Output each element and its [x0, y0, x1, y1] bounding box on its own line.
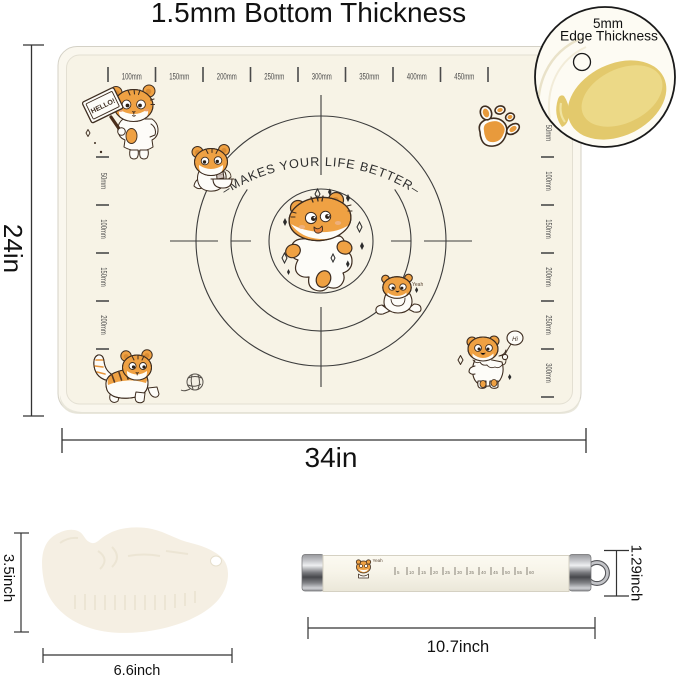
svg-text:10: 10	[409, 570, 415, 575]
svg-text:200mm: 200mm	[544, 267, 553, 287]
svg-text:Yeah: Yeah	[373, 558, 384, 563]
svg-text:40: 40	[481, 570, 487, 575]
svg-text:150mm: 150mm	[169, 72, 189, 82]
svg-text:6.6inch: 6.6inch	[114, 663, 161, 679]
svg-text:300mm: 300mm	[544, 363, 553, 383]
svg-text:100mm: 100mm	[122, 72, 142, 82]
svg-text:Edge Thickness: Edge Thickness	[560, 29, 658, 44]
svg-text:250mm: 250mm	[544, 315, 553, 335]
svg-text:250mm: 250mm	[264, 72, 284, 82]
svg-text:60: 60	[529, 570, 535, 575]
svg-text:100mm: 100mm	[99, 219, 108, 239]
svg-text:150mm: 150mm	[544, 219, 553, 239]
svg-text:Hi: Hi	[512, 337, 518, 343]
svg-text:Yeah: Yeah	[412, 282, 423, 288]
svg-text:30: 30	[457, 570, 463, 575]
svg-text:100mm: 100mm	[544, 171, 553, 191]
svg-text:15: 15	[421, 570, 427, 575]
svg-text:50: 50	[505, 570, 511, 575]
svg-text:450mm: 450mm	[454, 72, 474, 82]
svg-text:50mm: 50mm	[544, 125, 553, 142]
svg-text:24in: 24in	[0, 224, 28, 273]
svg-text:350mm: 350mm	[359, 72, 379, 82]
svg-text:25: 25	[445, 570, 451, 575]
svg-text:150mm: 150mm	[99, 267, 108, 287]
svg-text:1.29inch: 1.29inch	[628, 545, 645, 602]
svg-text:50mm: 50mm	[99, 173, 108, 190]
svg-text:35: 35	[469, 570, 475, 575]
svg-text:45: 45	[493, 570, 499, 575]
svg-text:55: 55	[517, 570, 523, 575]
svg-text:200mm: 200mm	[99, 315, 108, 335]
svg-text:300mm: 300mm	[312, 72, 332, 82]
svg-text:3.5inch: 3.5inch	[0, 554, 17, 602]
svg-text:1.5mm Bottom Thickness: 1.5mm Bottom Thickness	[151, 0, 466, 28]
svg-text:20: 20	[433, 570, 439, 575]
svg-text:10.7inch: 10.7inch	[427, 638, 489, 656]
svg-text:400mm: 400mm	[407, 72, 427, 82]
svg-text:200mm: 200mm	[217, 72, 237, 82]
svg-text:34in: 34in	[305, 442, 358, 473]
